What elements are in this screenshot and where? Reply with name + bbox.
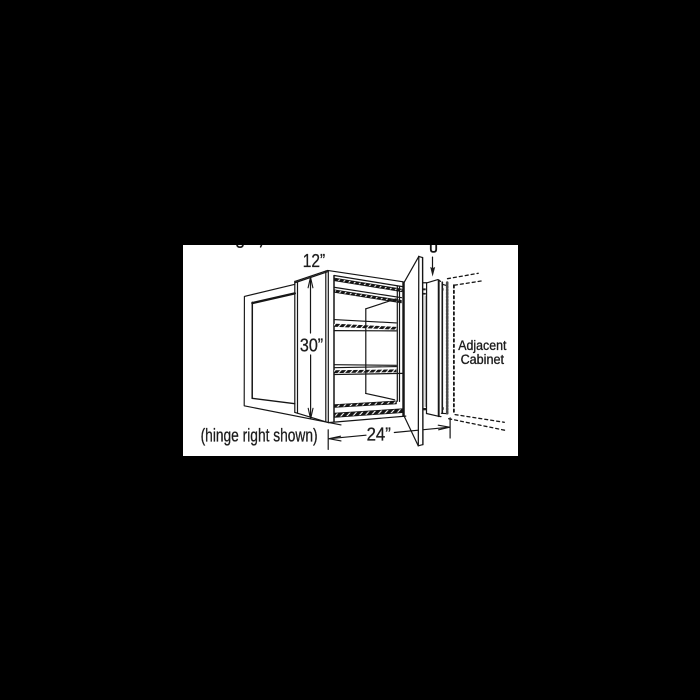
svg-text:(hinge right shown): (hinge right shown): [201, 426, 318, 446]
svg-text:12”: 12”: [303, 251, 325, 271]
svg-text:30”: 30”: [300, 336, 323, 356]
svg-text:Cabinet: Cabinet: [461, 352, 505, 367]
svg-text:24”: 24”: [367, 425, 391, 445]
svg-text:Adjacent: Adjacent: [458, 338, 506, 353]
